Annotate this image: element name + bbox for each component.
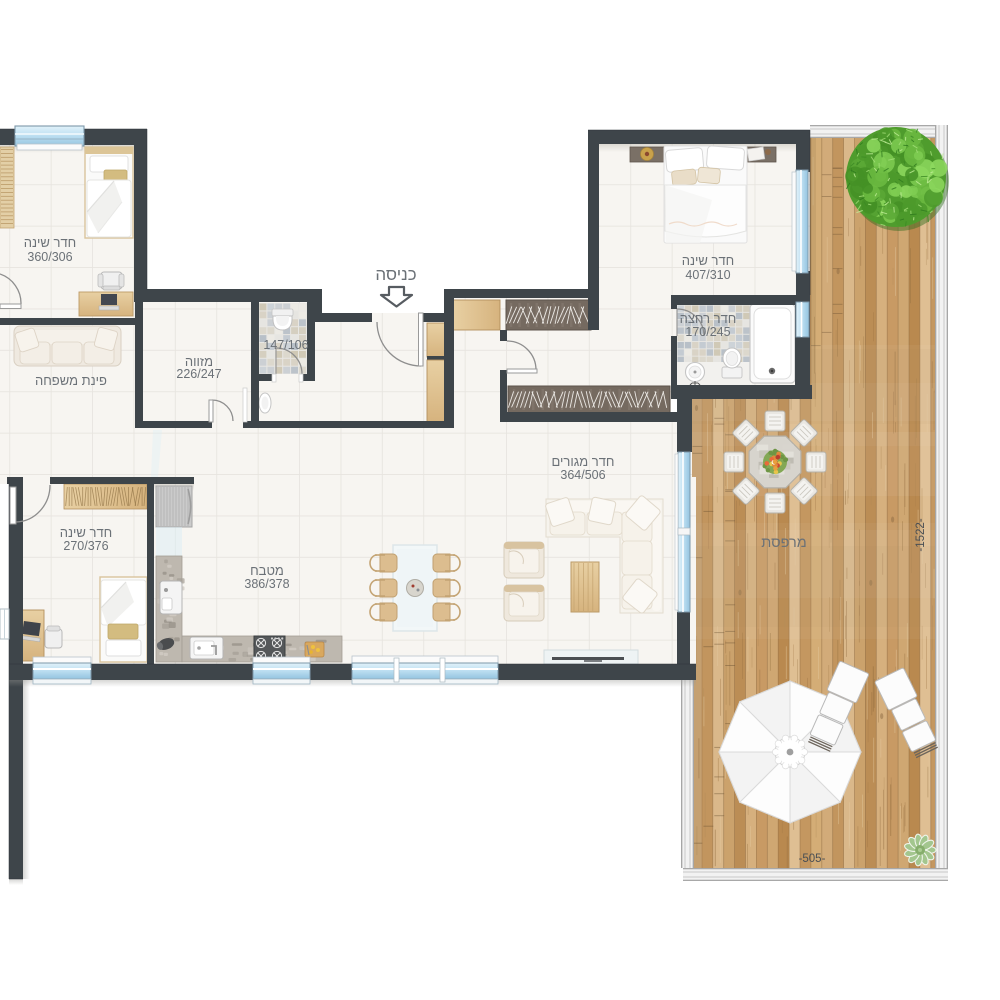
- svg-text:386/378: 386/378: [244, 577, 289, 591]
- svg-text:170/245: 170/245: [685, 325, 730, 339]
- svg-text:-1522-: -1522-: [915, 518, 927, 551]
- svg-text:360/306: 360/306: [27, 250, 72, 264]
- svg-text:פינת משפחה: פינת משפחה: [35, 373, 107, 388]
- svg-text:חדר רחצה: חדר רחצה: [680, 311, 737, 326]
- svg-text:-505-: -505-: [799, 853, 826, 865]
- svg-text:כניסה: כניסה: [375, 265, 416, 284]
- svg-text:270/376: 270/376: [63, 539, 108, 553]
- svg-text:מרפסת: מרפסת: [761, 535, 807, 551]
- svg-text:147/106: 147/106: [263, 338, 308, 352]
- svg-text:חדר שינה: חדר שינה: [24, 235, 76, 250]
- svg-text:364/506: 364/506: [560, 468, 605, 482]
- svg-text:חדר שינה: חדר שינה: [60, 525, 112, 540]
- svg-text:מטבח: מטבח: [250, 563, 284, 578]
- svg-text:חדר מגורים: חדר מגורים: [551, 454, 614, 469]
- svg-text:226/247: 226/247: [176, 367, 221, 381]
- svg-text:407/310: 407/310: [685, 268, 730, 282]
- svg-text:חדר שינה: חדר שינה: [682, 253, 734, 268]
